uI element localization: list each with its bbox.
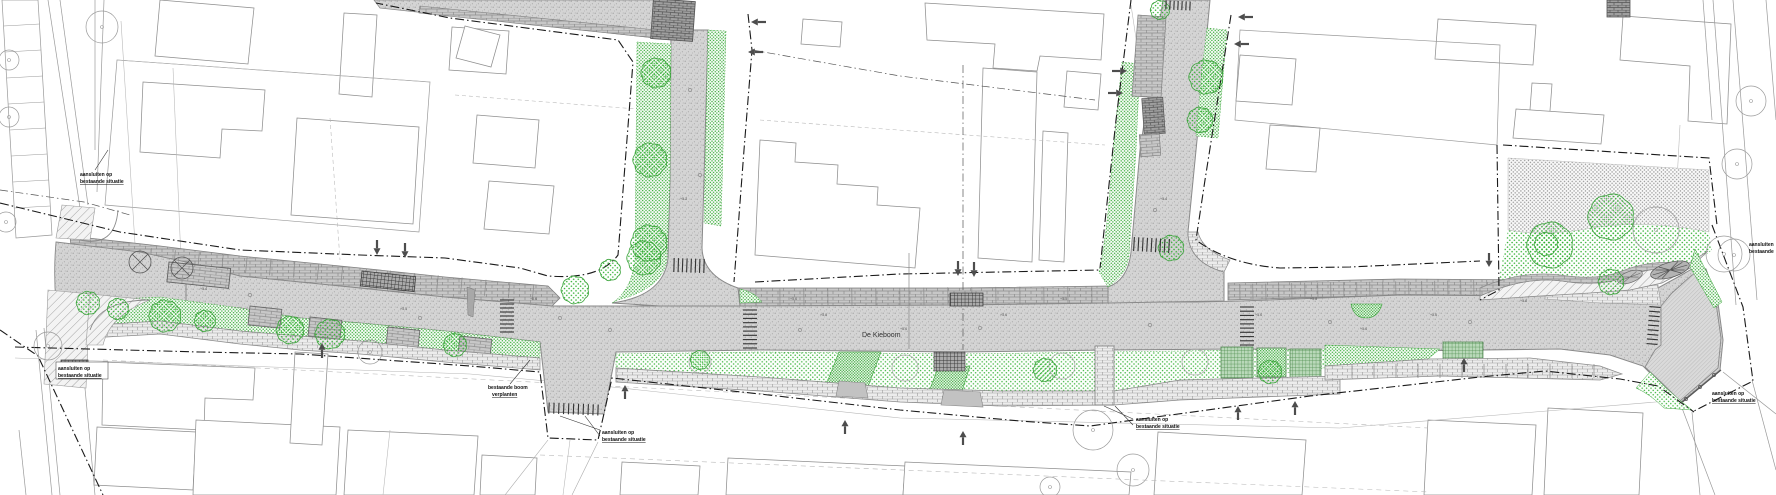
- svg-text:bestaande situatie: bestaande situatie: [58, 373, 102, 379]
- svg-text:bestaande boom: bestaande boom: [488, 385, 528, 391]
- svg-text:+5.4: +5.4: [200, 287, 207, 291]
- svg-text:verplanten: verplanten: [492, 392, 517, 398]
- svg-text:+5.4: +5.4: [1160, 197, 1167, 201]
- svg-text:+5.6: +5.6: [790, 297, 797, 301]
- svg-text:+5.6: +5.6: [1430, 313, 1437, 317]
- svg-text:+5.8: +5.8: [1310, 297, 1317, 301]
- svg-text:aansluiten op: aansluiten op: [58, 366, 90, 372]
- svg-text:+5.6: +5.6: [1255, 313, 1262, 317]
- svg-text:bestaande situatie: bestaande situatie: [80, 179, 124, 185]
- svg-text:+5.8: +5.8: [1520, 299, 1527, 303]
- svg-text:aansluiten op: aansluiten op: [1712, 391, 1744, 397]
- svg-text:+5.6: +5.6: [530, 297, 537, 301]
- svg-text:aansluiten op: aansluiten op: [1136, 417, 1168, 423]
- svg-text:aansluiten op: aansluiten op: [602, 430, 634, 436]
- svg-text:+5.6: +5.6: [1000, 313, 1007, 317]
- svg-text:+5.3: +5.3: [680, 197, 687, 201]
- svg-text:bestaande situatie: bestaande situatie: [602, 437, 646, 443]
- svg-text:+5.6: +5.6: [900, 327, 907, 331]
- svg-text:aansluiten: aansluiten: [1749, 242, 1774, 248]
- svg-text:bestaande situatie: bestaande situatie: [1712, 398, 1756, 404]
- svg-text:De Kieboom: De Kieboom: [862, 332, 901, 339]
- svg-text:+5.8: +5.8: [820, 313, 827, 317]
- svg-text:+5.6: +5.6: [1360, 327, 1367, 331]
- svg-text:bestaande situatie: bestaande situatie: [1136, 424, 1180, 430]
- svg-text:+5.5: +5.5: [1060, 297, 1067, 301]
- svg-text:bestaande: bestaande: [1749, 249, 1774, 255]
- svg-text:+5.5: +5.5: [400, 307, 407, 311]
- svg-text:aansluiten op: aansluiten op: [80, 172, 112, 178]
